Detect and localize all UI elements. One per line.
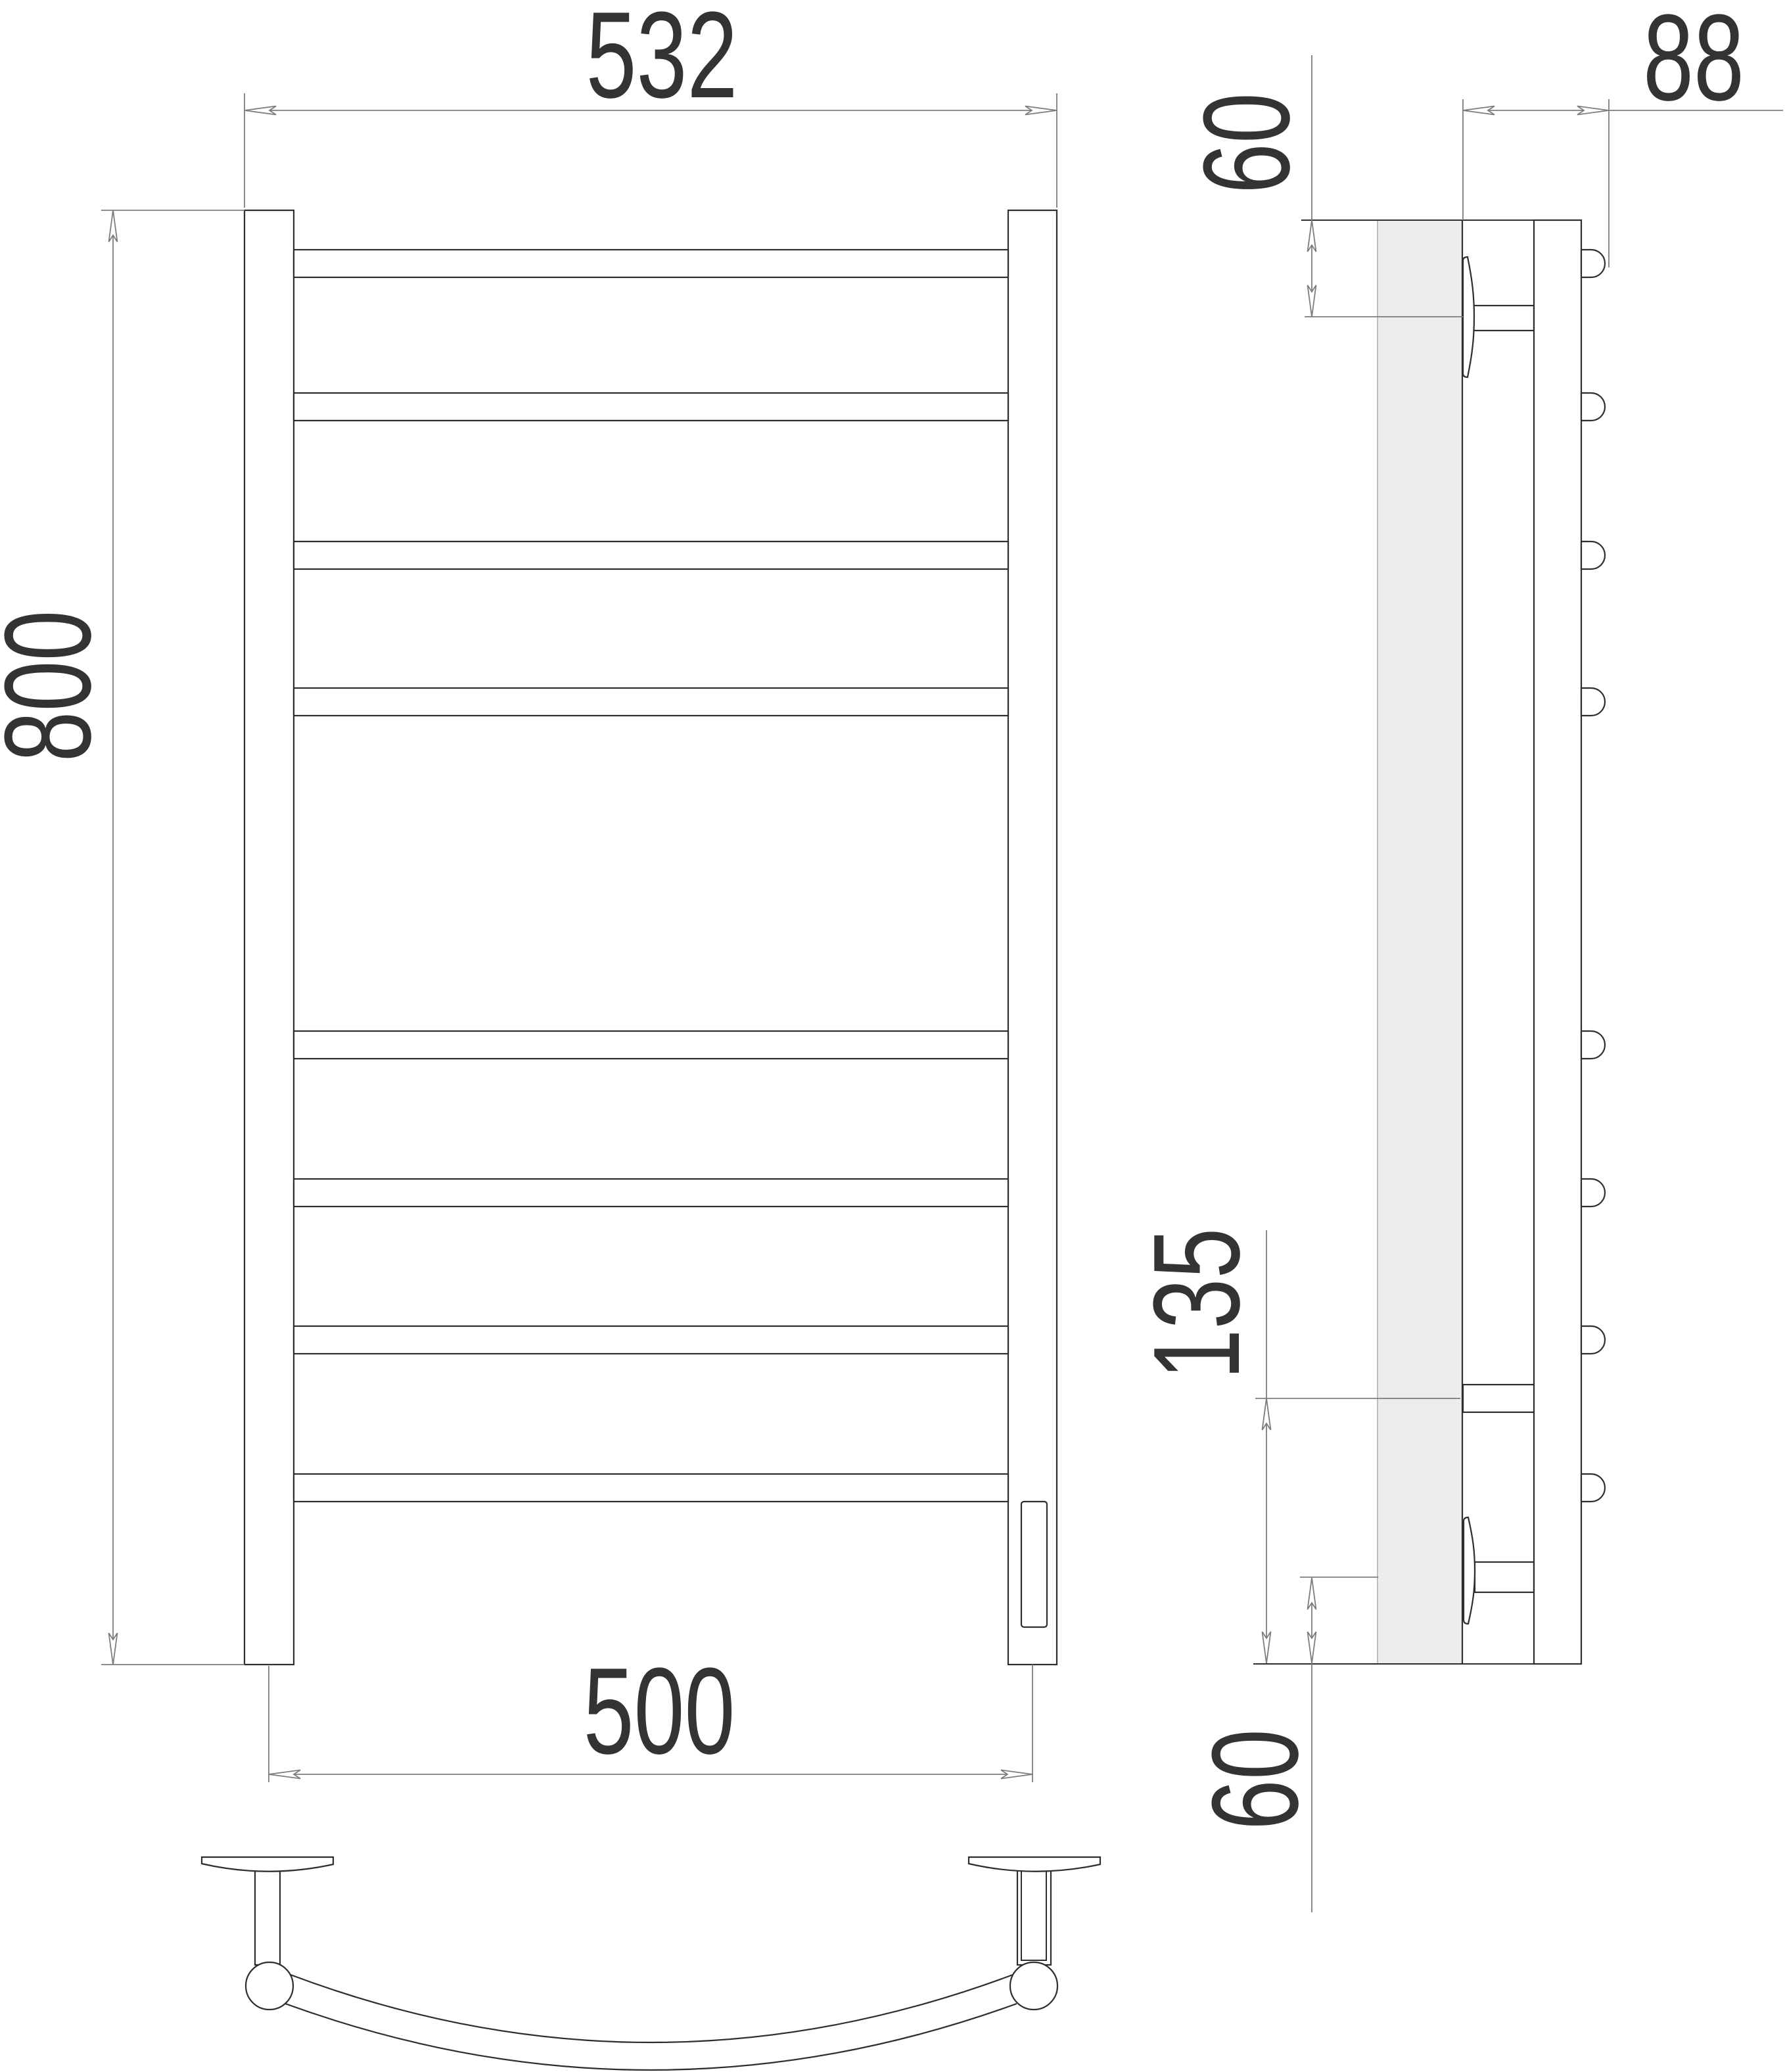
svg-text:88: 88 bbox=[1643, 0, 1744, 126]
svg-text:135: 135 bbox=[1128, 1228, 1265, 1380]
svg-text:500: 500 bbox=[584, 1642, 735, 1780]
svg-text:800: 800 bbox=[0, 610, 116, 762]
svg-text:532: 532 bbox=[586, 0, 738, 124]
svg-text:60: 60 bbox=[1186, 1729, 1324, 1830]
svg-text:60: 60 bbox=[1178, 93, 1315, 194]
